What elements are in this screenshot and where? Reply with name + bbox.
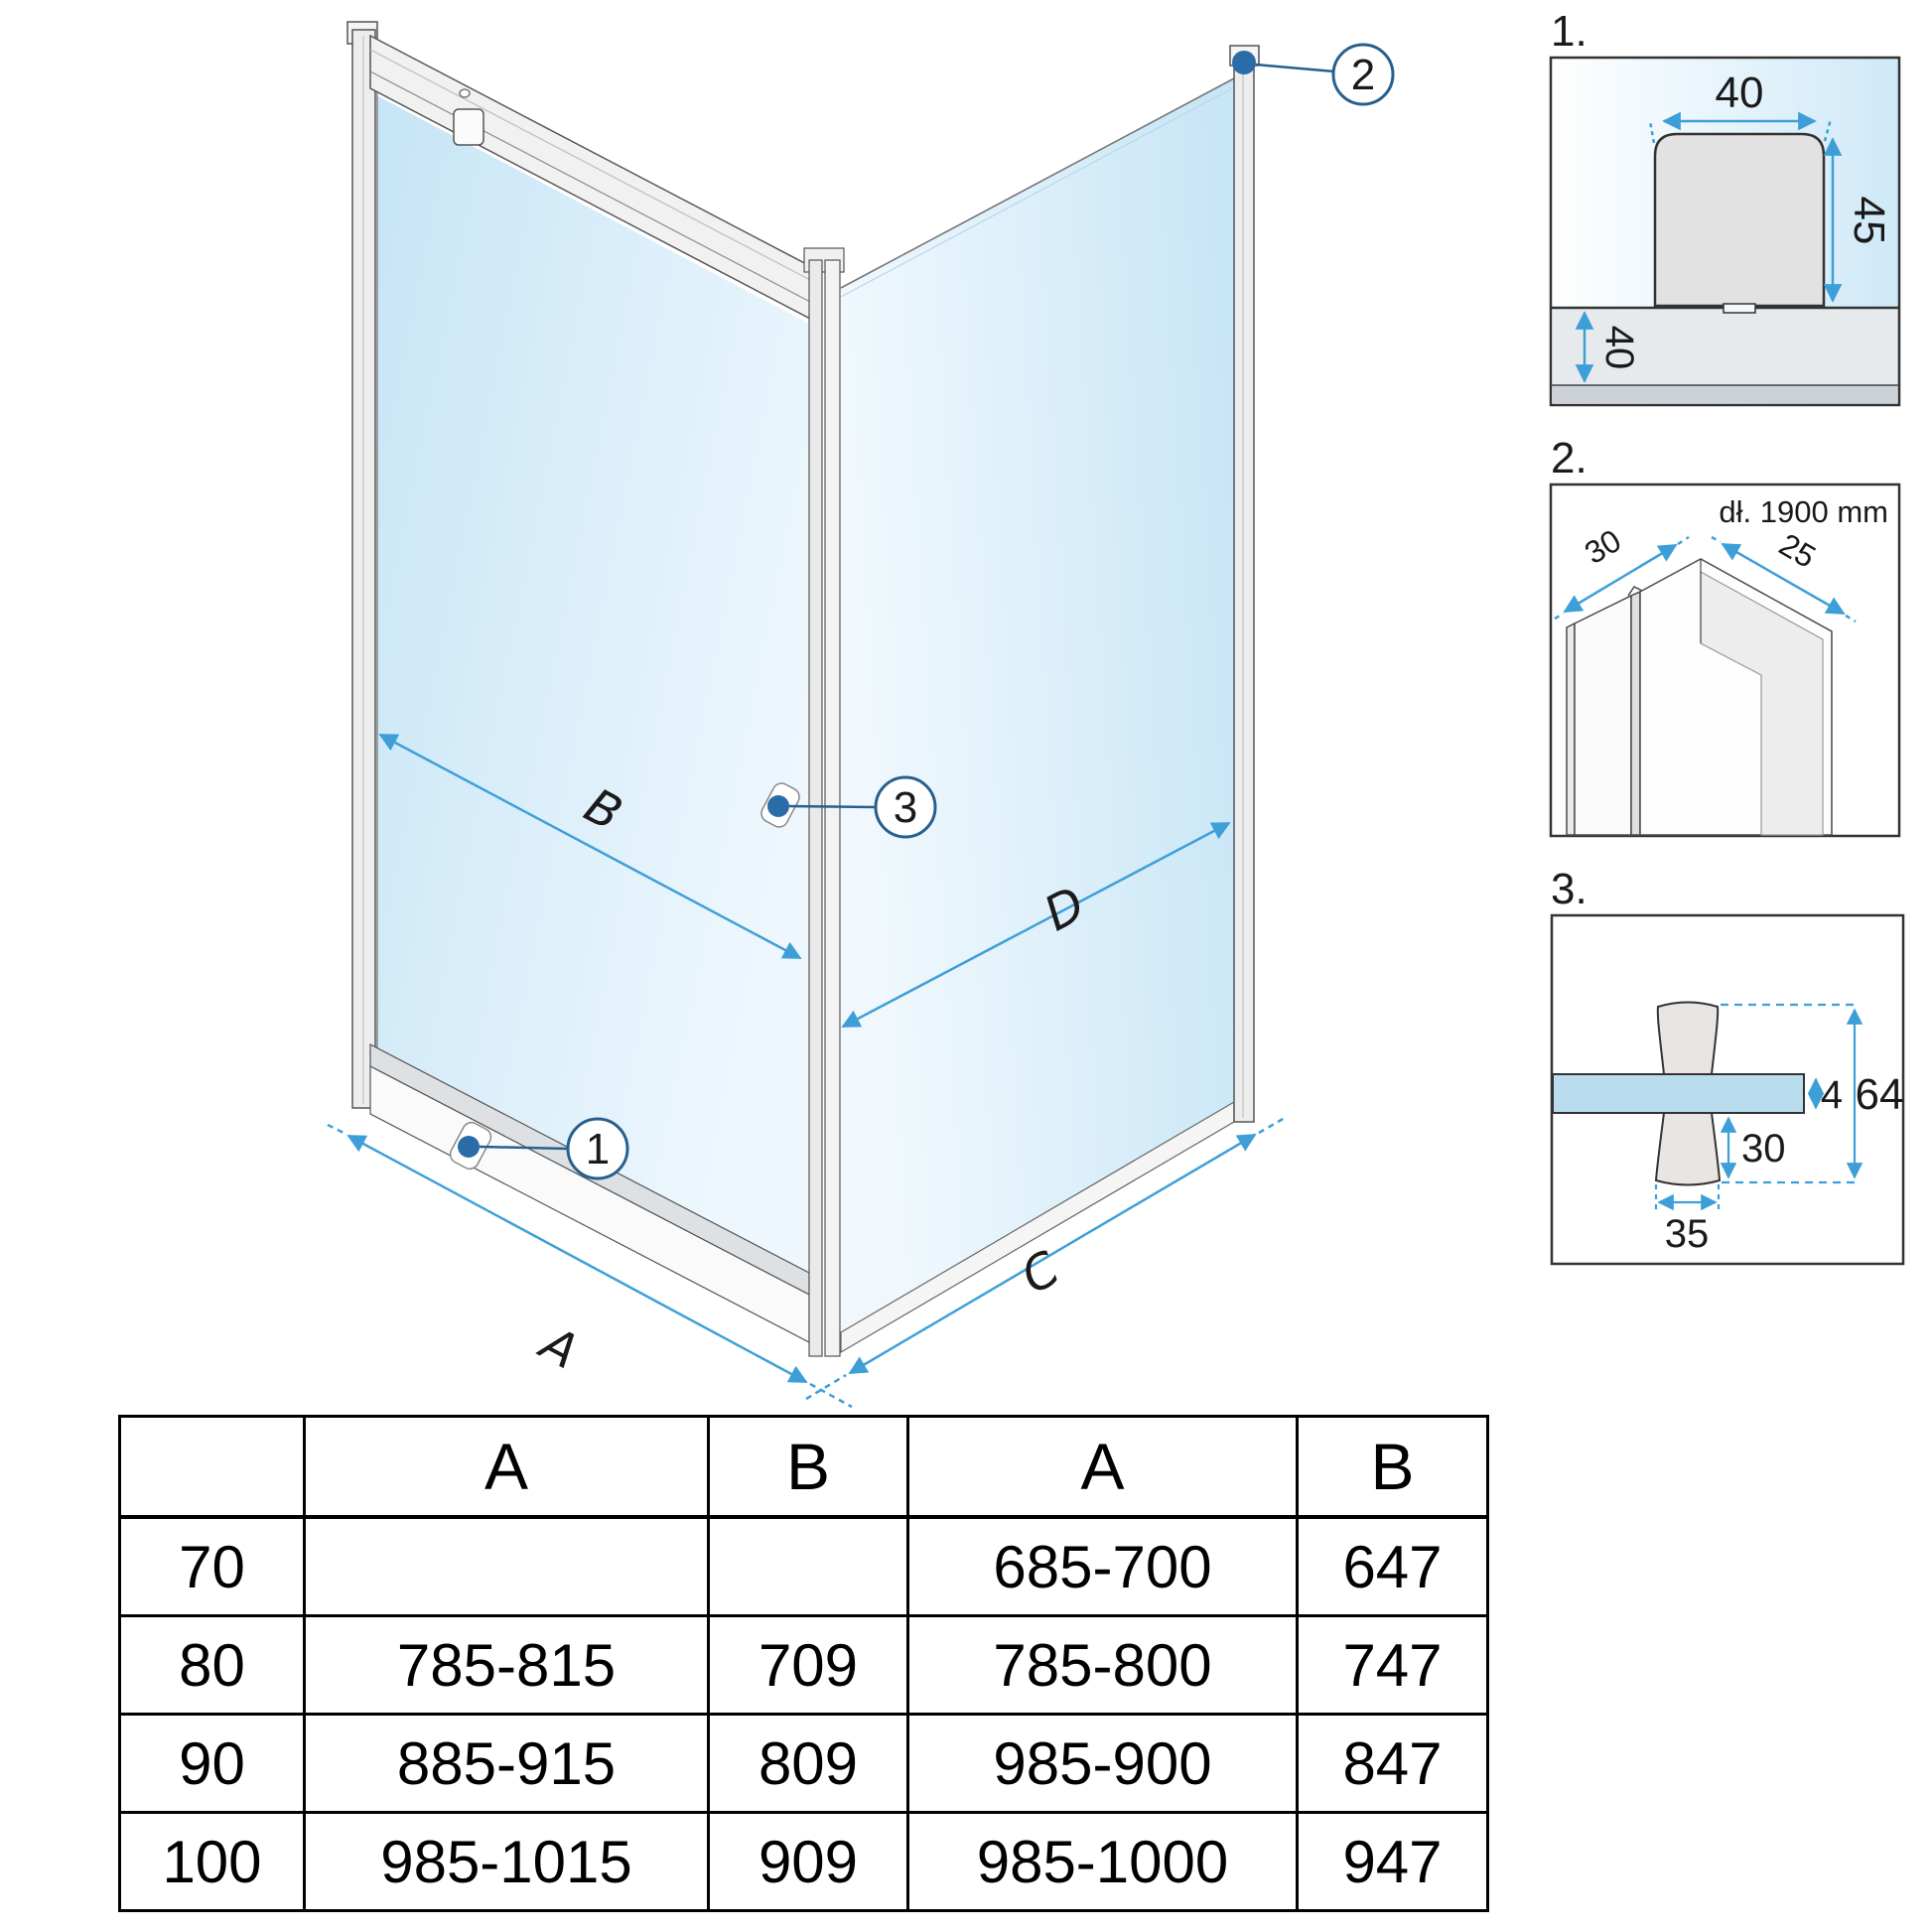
cell-b2: 947 — [1298, 1813, 1488, 1911]
detail-panel-1: 1. 40 45 40 — [1551, 7, 1899, 405]
left-wall-profile — [347, 22, 377, 1108]
cell-a2: 985-900 — [908, 1715, 1298, 1813]
detail-panel-3: 3. 4 64 30 35 — [1551, 865, 1903, 1264]
top-rail-screw — [460, 89, 470, 97]
size-table-header: A B A B — [120, 1417, 1488, 1518]
header-cell-b1: B — [709, 1417, 908, 1518]
detail-3-knob-height-value: 30 — [1741, 1127, 1786, 1171]
callout-1-number: 1 — [586, 1125, 610, 1173]
callout-2-dot — [1232, 51, 1256, 74]
header-cell-a2: A — [908, 1417, 1298, 1518]
dimension-c-ext-right — [1259, 1118, 1285, 1133]
cell-a1: 785-815 — [305, 1616, 709, 1715]
detail-1-tray-value: 40 — [1597, 326, 1641, 370]
detail-1-profile-foot — [1724, 304, 1755, 313]
header-cell-b2: B — [1298, 1417, 1488, 1518]
shower-enclosure-spec-sheet: B D A C 1 — [0, 0, 1932, 1932]
cell-size: 70 — [120, 1517, 305, 1616]
cell-size: 90 — [120, 1715, 305, 1813]
callout-2-number: 2 — [1351, 51, 1375, 99]
detail-2-corner-post — [1631, 592, 1640, 835]
cell-a2: 985-1000 — [908, 1813, 1298, 1911]
detail-1-profile — [1655, 134, 1824, 306]
cell-b1 — [709, 1517, 908, 1616]
table-row-100: 100 985-1015 909 985-1000 947 — [120, 1813, 1488, 1911]
header-cell-a1: A — [305, 1417, 709, 1518]
detail-3-knob-top — [1658, 1003, 1718, 1075]
detail-3-knob-bottom — [1656, 1113, 1720, 1185]
callout-3-number: 3 — [894, 783, 917, 832]
detail-3-knob-width-value: 35 — [1665, 1212, 1710, 1256]
size-table: A B A B 70 685-700 647 80 785-815 709 78… — [118, 1415, 1489, 1912]
dimension-a-ext-right — [810, 1384, 852, 1407]
cell-b1: 809 — [709, 1715, 908, 1813]
detail-3-glass-value: 4 — [1821, 1073, 1843, 1117]
cell-b2: 847 — [1298, 1715, 1488, 1813]
detail-1-tray-edge — [1553, 385, 1897, 403]
detail-2-left-strip — [1567, 623, 1575, 835]
table-row-70: 70 685-700 647 — [120, 1517, 1488, 1616]
cell-b2: 647 — [1298, 1517, 1488, 1616]
callout-3-dot — [767, 795, 789, 817]
dimension-c-ext-left — [806, 1375, 846, 1399]
cell-a1: 985-1015 — [305, 1813, 709, 1911]
header-cell-size — [120, 1417, 305, 1518]
table-row-80: 80 785-815 709 785-800 747 — [120, 1616, 1488, 1715]
cell-a2: 685-700 — [908, 1517, 1298, 1616]
detail-3-glass-bar — [1553, 1074, 1804, 1113]
main-isometric-drawing: B D A C 1 — [328, 22, 1393, 1407]
detail-3-total-value: 64 — [1856, 1070, 1904, 1119]
detail-1-width-value: 40 — [1716, 69, 1764, 117]
corner-frame — [804, 248, 844, 1356]
callout-2-leader — [1256, 65, 1334, 71]
detail-2-left-face — [1575, 596, 1631, 835]
callout-1-dot — [458, 1136, 480, 1158]
detail-1-index: 1. — [1551, 7, 1587, 56]
detail-panel-2: 2. dł. 1900 mm 30 25 — [1551, 434, 1899, 836]
dimension-a-label: A — [529, 1314, 587, 1380]
corner-frame-bar-right — [825, 260, 840, 1356]
cell-a2: 785-800 — [908, 1616, 1298, 1715]
cell-size: 80 — [120, 1616, 305, 1715]
detail-2-index: 2. — [1551, 434, 1587, 483]
cell-b1: 709 — [709, 1616, 908, 1715]
cell-size: 100 — [120, 1813, 305, 1911]
side-panel — [841, 46, 1259, 1352]
top-pivot-bracket — [454, 109, 483, 145]
corner-frame-bar-left — [809, 260, 822, 1356]
callout-3-leader — [789, 806, 876, 807]
cell-a1: 885-915 — [305, 1715, 709, 1813]
table-row-90: 90 885-915 809 985-900 847 — [120, 1715, 1488, 1813]
right-wall-profile-bar — [1234, 58, 1254, 1122]
detail-2-length-note: dł. 1900 mm — [1719, 494, 1888, 529]
header-row: A B A B — [120, 1417, 1488, 1518]
cell-a1 — [305, 1517, 709, 1616]
detail-1-height-value: 45 — [1845, 197, 1893, 245]
dimension-a-ext-left — [328, 1125, 345, 1134]
detail-3-index: 3. — [1551, 865, 1587, 913]
cell-b1: 909 — [709, 1813, 908, 1911]
cell-b2: 747 — [1298, 1616, 1488, 1715]
